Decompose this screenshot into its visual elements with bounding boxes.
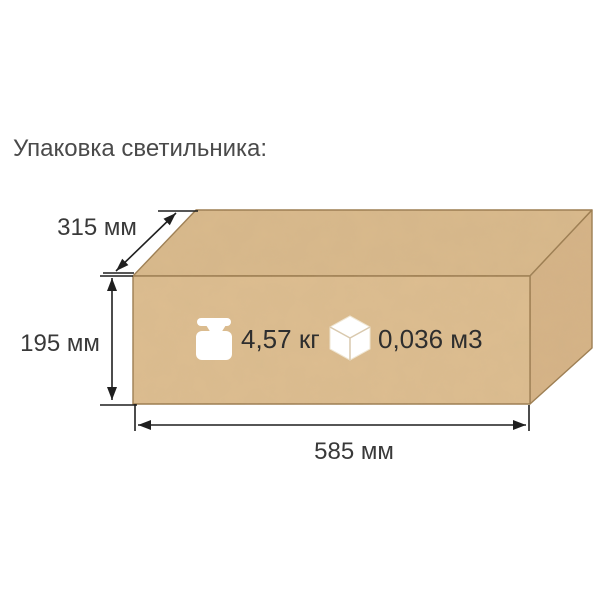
depth-label: 315 мм: [57, 214, 137, 241]
dimension-width: 585 мм: [135, 404, 529, 465]
height-arrowhead-top: [107, 278, 117, 291]
height-arrowhead-bottom: [107, 387, 117, 400]
weight-icon: [196, 318, 232, 360]
weight-spec: 4,57 кг: [196, 318, 320, 360]
package-box: [133, 210, 592, 404]
diagram-svg: Упаковка светильника: 315 мм 195 мм: [0, 0, 600, 600]
weight-value: 4,57 кг: [241, 324, 320, 354]
weight-icon-body: [196, 331, 232, 360]
volume-value: 0,036 м3: [378, 324, 483, 354]
dimension-height: 195 мм: [20, 276, 137, 405]
width-label: 585 мм: [314, 438, 394, 465]
box-top-face: [133, 210, 592, 276]
page-title: Упаковка светильника:: [13, 135, 267, 162]
packaging-diagram: Упаковка светильника: 315 мм 195 мм: [0, 0, 600, 600]
height-label: 195 мм: [20, 330, 100, 357]
width-arrowhead-left: [138, 420, 151, 430]
width-arrowhead-right: [513, 420, 526, 430]
weight-icon-handle: [197, 318, 231, 326]
